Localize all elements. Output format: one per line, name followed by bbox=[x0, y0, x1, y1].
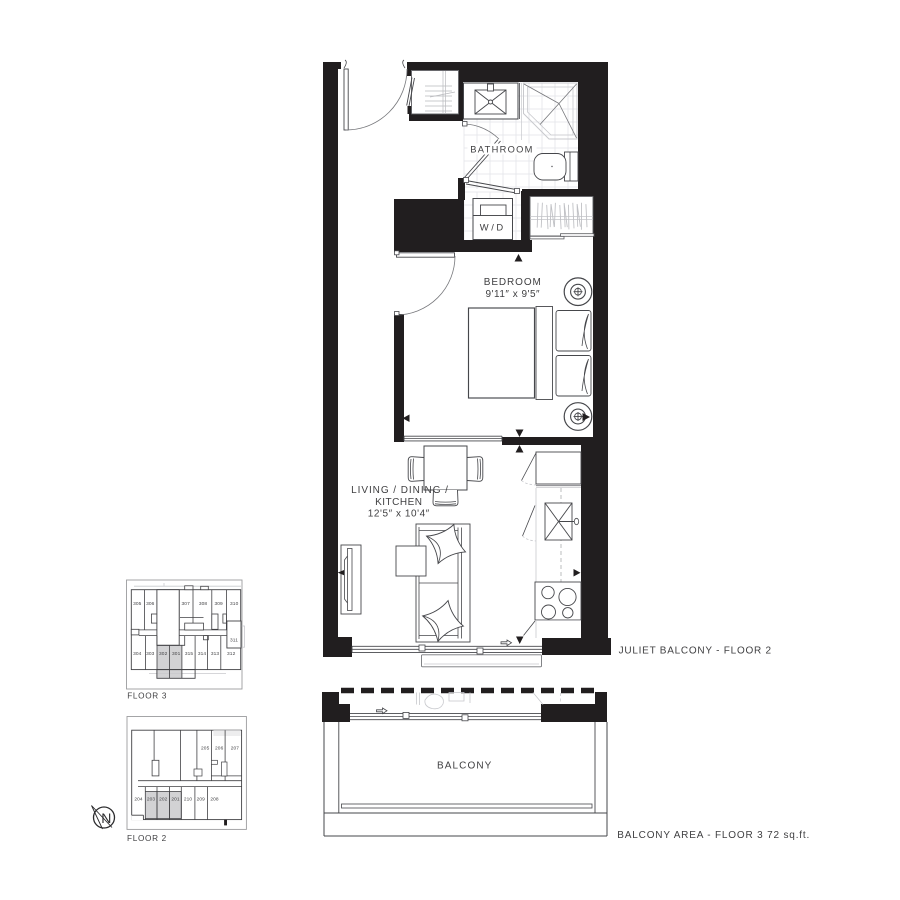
svg-text:N: N bbox=[101, 810, 111, 826]
svg-text:204: 204 bbox=[134, 797, 143, 803]
svg-text:311: 311 bbox=[230, 638, 238, 644]
svg-text:BALCONY: BALCONY bbox=[437, 761, 493, 772]
svg-text:12'5″ x 10'4″: 12'5″ x 10'4″ bbox=[368, 508, 430, 519]
svg-text:206: 206 bbox=[215, 746, 224, 752]
svg-text:310: 310 bbox=[230, 601, 239, 607]
svg-text:KITCHEN: KITCHEN bbox=[375, 497, 422, 508]
svg-text:210: 210 bbox=[184, 797, 193, 803]
svg-text:305: 305 bbox=[133, 601, 142, 607]
svg-text:9'11″ x 9'5″: 9'11″ x 9'5″ bbox=[486, 289, 541, 300]
svg-text:306: 306 bbox=[146, 601, 155, 607]
svg-text:BALCONY AREA - FLOOR 3 72 sq.f: BALCONY AREA - FLOOR 3 72 sq.ft. bbox=[617, 830, 810, 841]
svg-text:309: 309 bbox=[214, 601, 223, 607]
svg-text:301: 301 bbox=[172, 651, 181, 657]
svg-text:307: 307 bbox=[182, 601, 191, 607]
svg-text:302: 302 bbox=[159, 651, 168, 657]
svg-text:205: 205 bbox=[201, 746, 210, 752]
svg-text:303: 303 bbox=[146, 651, 155, 657]
svg-text:312: 312 bbox=[227, 651, 236, 657]
svg-text:308: 308 bbox=[199, 601, 208, 607]
svg-text:W/D: W/D bbox=[480, 222, 506, 233]
svg-text:207: 207 bbox=[231, 746, 240, 752]
svg-text:315: 315 bbox=[185, 651, 194, 657]
svg-text:314: 314 bbox=[198, 651, 207, 657]
svg-text:208: 208 bbox=[210, 797, 219, 803]
svg-text:201: 201 bbox=[171, 797, 180, 803]
svg-text:BEDROOM: BEDROOM bbox=[484, 277, 542, 288]
svg-text:LIVING / DINING /: LIVING / DINING / bbox=[351, 485, 449, 496]
svg-text:FLOOR 2: FLOOR 2 bbox=[127, 834, 167, 843]
svg-text:203: 203 bbox=[147, 797, 156, 803]
svg-text:202: 202 bbox=[159, 797, 168, 803]
svg-text:313: 313 bbox=[211, 651, 220, 657]
svg-text:304: 304 bbox=[133, 651, 142, 657]
svg-text:FLOOR 3: FLOOR 3 bbox=[127, 692, 167, 701]
svg-text:209: 209 bbox=[197, 797, 206, 803]
svg-text:BATHROOM: BATHROOM bbox=[470, 145, 533, 155]
svg-text:JULIET BALCONY - FLOOR 2: JULIET BALCONY - FLOOR 2 bbox=[619, 645, 772, 656]
